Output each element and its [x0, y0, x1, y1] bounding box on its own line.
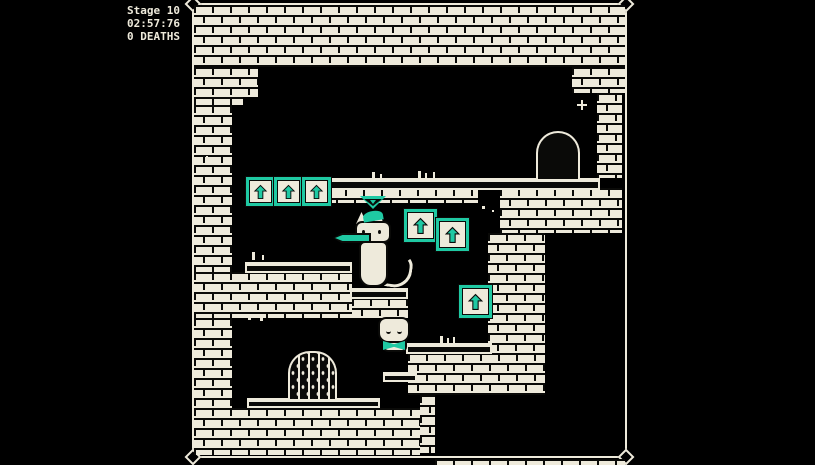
timer: 02:57:76: [58, 17, 180, 30]
brick-wall-left-step: [194, 67, 258, 97]
cat-eye: [378, 230, 381, 234]
stage-label: Stage 10: [58, 4, 180, 17]
grass-speck: [425, 173, 427, 178]
up-arrow-icon: [412, 217, 429, 235]
brick-bridge-right: [500, 188, 622, 233]
debris-speck: [206, 156, 208, 158]
arrow-block: [459, 285, 492, 318]
up-arrow-icon: [309, 184, 324, 200]
arrow-block: [246, 177, 275, 206]
brick-thin-strip: [420, 395, 435, 453]
grass-speck: [418, 171, 421, 178]
debris-speck: [492, 210, 494, 212]
arrow-block: [436, 218, 469, 251]
brick-wall-left-column: [194, 318, 232, 408]
wooden-door: [288, 351, 337, 399]
arrow-block: [274, 177, 303, 206]
debris-speck: [214, 160, 216, 162]
platform-long: [327, 178, 600, 190]
death-counter: 0 DEATHS: [58, 30, 180, 43]
platform-ledge: [406, 343, 492, 354]
brick-floor-bottom-left: [194, 408, 420, 455]
grass-speck: [380, 174, 382, 178]
up-arrow-icon: [467, 293, 484, 311]
game-viewport[interactable]: Stage 10 02:57:76 0 DEATHS: [0, 0, 815, 465]
brick-bridge-left: [327, 188, 478, 203]
grass-speck: [440, 336, 443, 343]
cat-closed-eye: [397, 328, 402, 334]
brick-center-column: [488, 233, 545, 353]
sparkle-icon: [577, 104, 587, 106]
moss-speck: [248, 314, 251, 320]
debris-speck: [482, 206, 485, 209]
up-arrow-icon: [444, 226, 461, 244]
platform-left-ledge: [245, 262, 352, 273]
brick-bottom-right-sliver: [435, 459, 625, 465]
grass-speck: [433, 172, 435, 178]
grass-speck: [447, 338, 449, 343]
brick-right-column: [597, 93, 622, 178]
grass-speck: [453, 337, 455, 343]
brick-wall-top: [194, 5, 625, 67]
grass-speck: [262, 255, 264, 260]
arched-doorway: [536, 131, 580, 179]
moss-speck: [260, 314, 263, 321]
brick-under-ledge: [408, 353, 545, 395]
arrow-block: [404, 209, 437, 242]
platform-step: [383, 372, 417, 382]
arrow-block: [302, 177, 331, 206]
cat-closed-eye: [386, 328, 391, 334]
platform-player: [350, 288, 408, 299]
hud: Stage 10 02:57:76 0 DEATHS: [58, 4, 180, 43]
brick-under-player-platform: [352, 298, 408, 318]
cat-head: [378, 317, 410, 343]
grass-speck: [252, 252, 255, 260]
grass-speck: [372, 172, 375, 178]
brick-wall-left-column: [194, 105, 232, 272]
platform-door-ledge: [247, 398, 380, 408]
up-arrow-icon: [253, 184, 268, 200]
brick-right-top: [572, 67, 625, 93]
brick-wall-left-step: [194, 97, 243, 105]
brick-ledge-mass-left: [194, 272, 352, 318]
up-arrow-icon: [281, 184, 296, 200]
